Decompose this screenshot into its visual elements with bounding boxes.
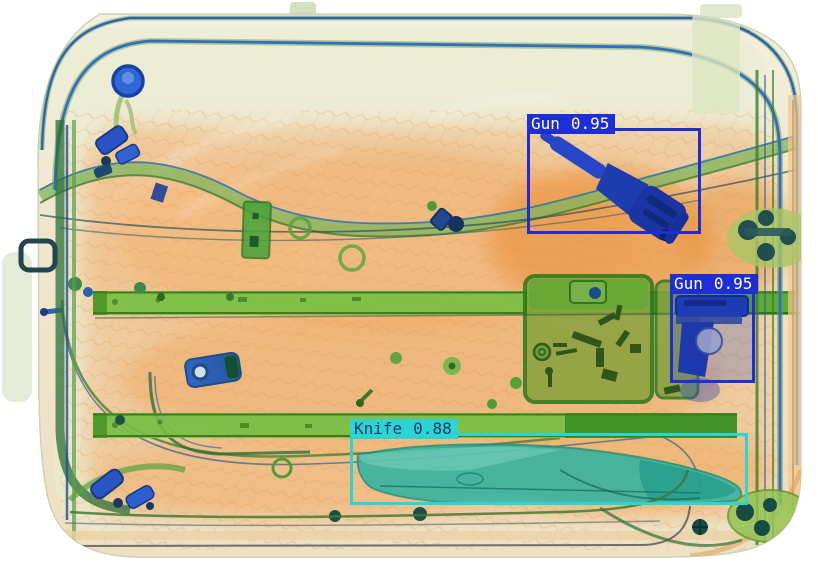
detection-score-gun-1: 0.95 <box>571 115 610 132</box>
detection-box-gun-1: Gun 0.95 <box>527 128 701 234</box>
detection-class-gun-1: Gun <box>531 115 560 132</box>
xray-scan-viewport: Gun 0.95 Gun 0.95 Knife 0.88 <box>0 0 818 569</box>
detection-label-gun-1: Gun 0.95 <box>527 114 615 134</box>
detection-class-knife: Knife <box>354 420 402 437</box>
zipper-knob-mid <box>448 216 464 232</box>
green-tag <box>242 202 271 259</box>
green-dot <box>427 201 437 211</box>
case-top-tab-right <box>700 4 742 18</box>
detection-box-gun-2: Gun 0.95 <box>670 288 755 383</box>
detection-class-gun-2: Gun <box>674 275 703 292</box>
detection-label-gun-2: Gun 0.95 <box>670 274 758 294</box>
detection-label-knife: Knife 0.88 <box>350 419 458 439</box>
detection-box-knife: Knife 0.88 <box>350 433 748 505</box>
detection-score-gun-2: 0.95 <box>714 275 753 292</box>
detection-score-knife: 0.88 <box>413 420 452 437</box>
case-left-tab <box>2 252 32 402</box>
